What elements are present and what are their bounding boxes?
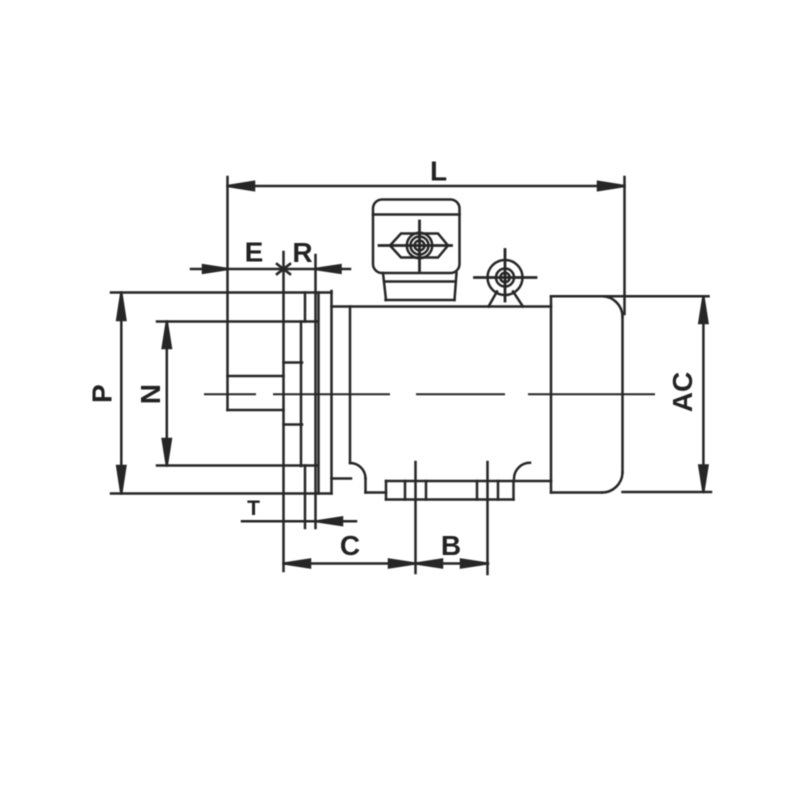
svg-text:C: C [340, 530, 360, 561]
svg-text:P: P [87, 384, 118, 403]
svg-text:N: N [135, 384, 166, 404]
svg-text:E: E [245, 237, 264, 268]
svg-text:L: L [430, 156, 447, 187]
svg-text:T: T [247, 497, 260, 520]
svg-text:B: B [441, 530, 461, 561]
svg-text:AC: AC [667, 372, 698, 412]
svg-text:R: R [292, 237, 312, 268]
